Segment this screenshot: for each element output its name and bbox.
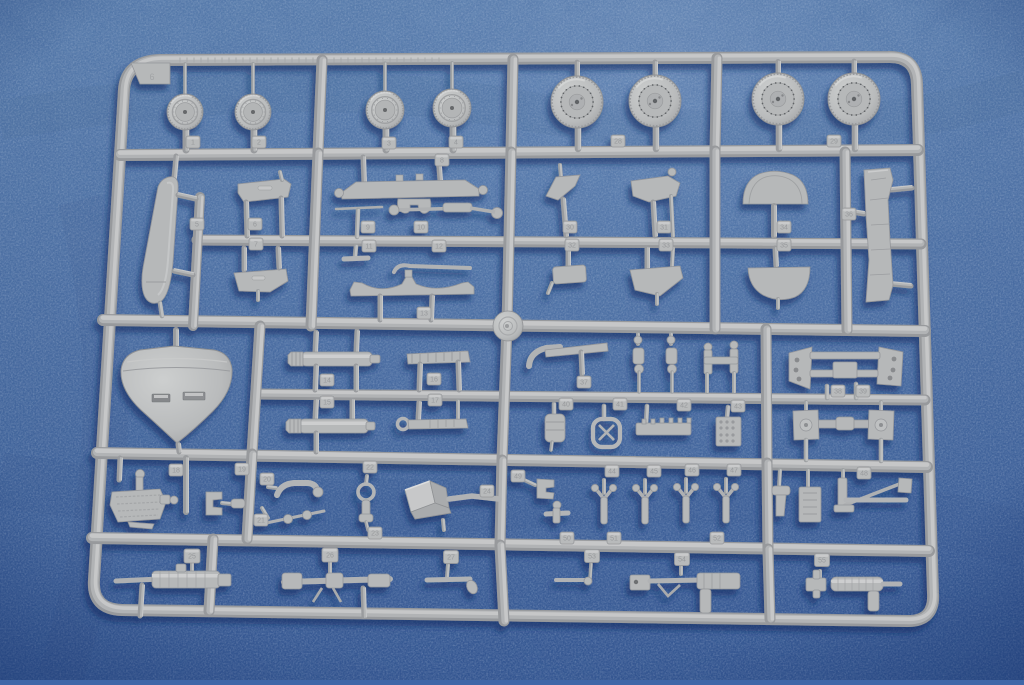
svg-text:55: 55 xyxy=(818,558,826,565)
svg-text:11: 11 xyxy=(365,244,372,251)
svg-text:26: 26 xyxy=(326,553,334,560)
svg-text:53: 53 xyxy=(588,554,596,561)
svg-text:36: 36 xyxy=(845,212,853,219)
svg-text:2: 2 xyxy=(257,140,261,147)
svg-text:7: 7 xyxy=(254,242,258,249)
svg-text:24: 24 xyxy=(483,489,491,496)
svg-text:8: 8 xyxy=(440,158,444,165)
svg-text:33: 33 xyxy=(662,243,670,250)
svg-text:31: 31 xyxy=(660,225,668,232)
svg-text:19: 19 xyxy=(238,467,246,474)
svg-text:23: 23 xyxy=(371,531,379,538)
svg-text:14: 14 xyxy=(323,378,331,385)
svg-text:3: 3 xyxy=(387,141,391,148)
svg-text:38: 38 xyxy=(834,389,842,396)
svg-text:18: 18 xyxy=(172,468,180,475)
svg-text:9: 9 xyxy=(366,225,370,232)
svg-text:28: 28 xyxy=(614,139,622,146)
svg-text:54: 54 xyxy=(678,557,686,564)
svg-text:22: 22 xyxy=(366,465,374,472)
svg-text:45: 45 xyxy=(650,469,658,476)
svg-text:34: 34 xyxy=(780,225,788,232)
svg-text:27: 27 xyxy=(447,555,455,562)
svg-text:32: 32 xyxy=(568,243,576,250)
svg-text:29: 29 xyxy=(830,139,838,146)
svg-text:41: 41 xyxy=(616,402,624,409)
svg-text:16: 16 xyxy=(430,377,438,384)
svg-text:12: 12 xyxy=(435,244,443,251)
svg-text:20: 20 xyxy=(263,477,271,484)
svg-text:13: 13 xyxy=(420,311,428,318)
svg-text:47: 47 xyxy=(730,468,738,475)
svg-text:6: 6 xyxy=(149,72,154,82)
svg-text:39: 39 xyxy=(859,389,867,396)
svg-text:40: 40 xyxy=(562,402,570,409)
svg-text:35: 35 xyxy=(780,243,788,250)
svg-text:46: 46 xyxy=(688,468,696,475)
svg-text:4: 4 xyxy=(454,140,458,147)
svg-text:43: 43 xyxy=(734,404,742,411)
svg-text:49: 49 xyxy=(514,474,522,481)
svg-text:1: 1 xyxy=(191,140,195,147)
svg-text:37: 37 xyxy=(580,380,588,387)
svg-text:21: 21 xyxy=(257,518,265,525)
svg-text:52: 52 xyxy=(713,536,721,543)
svg-text:48: 48 xyxy=(860,471,868,478)
svg-text:42: 42 xyxy=(680,403,688,410)
svg-text:5: 5 xyxy=(195,222,199,229)
svg-text:17: 17 xyxy=(431,398,439,405)
svg-text:50: 50 xyxy=(563,536,571,543)
svg-text:10: 10 xyxy=(417,225,425,232)
svg-text:15: 15 xyxy=(323,400,331,407)
svg-text:44: 44 xyxy=(608,469,616,476)
svg-text:25: 25 xyxy=(188,554,196,561)
svg-text:30: 30 xyxy=(566,225,574,232)
svg-text:51: 51 xyxy=(610,536,618,543)
svg-text:6: 6 xyxy=(253,222,257,229)
